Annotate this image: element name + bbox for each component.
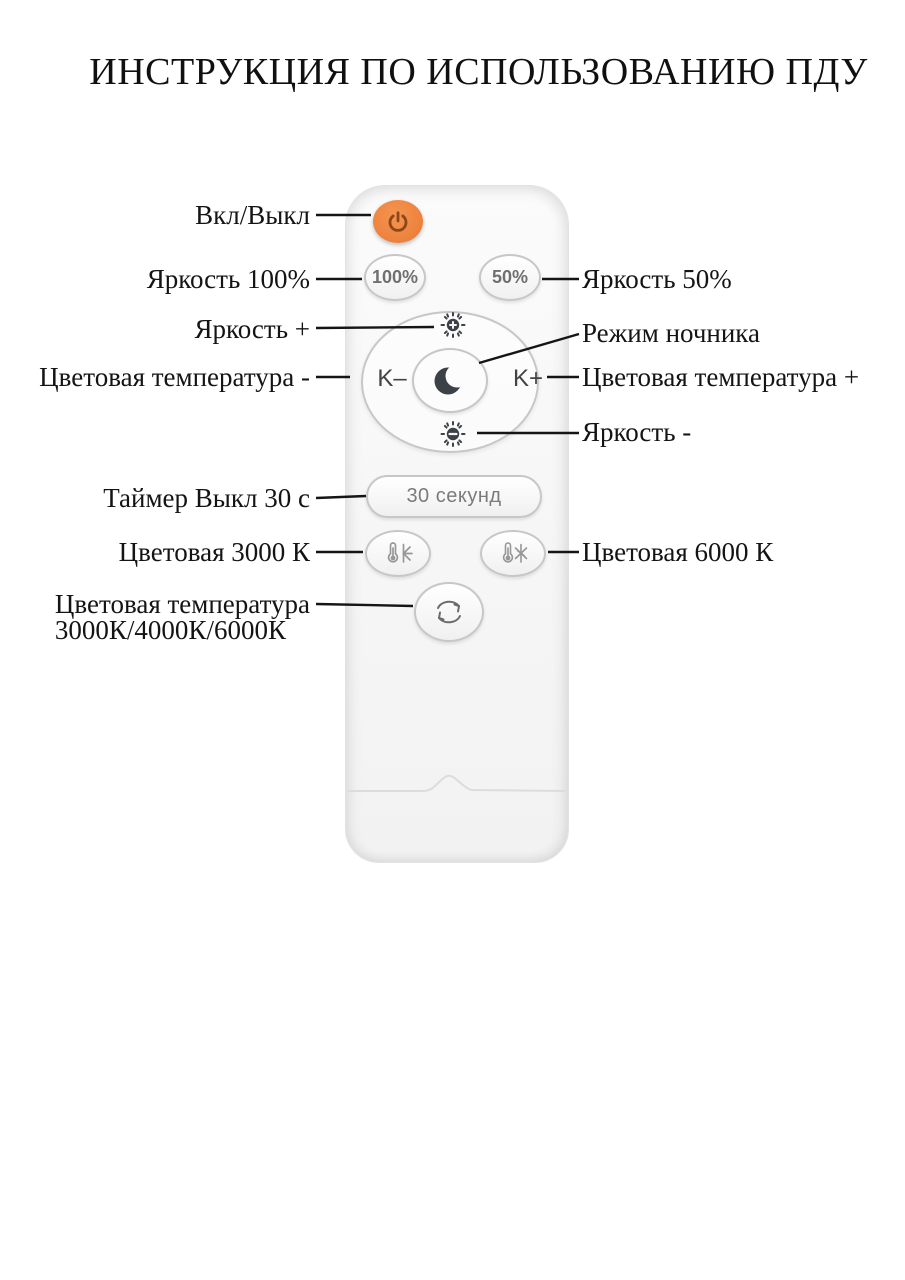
brightness-50-label: 50% — [492, 267, 528, 288]
label-brightness-50: Яркость 50% — [582, 265, 732, 293]
color-temp-minus-button[interactable]: K– — [370, 365, 414, 393]
label-night-mode: Режим ночника — [582, 319, 760, 347]
thermometer-snowflake-icon — [493, 539, 533, 569]
color-cycle-button[interactable] — [414, 582, 484, 642]
label-power: Вкл/Выкл — [195, 201, 310, 229]
label-brightness-up: Яркость + — [194, 315, 310, 343]
label-color-cycle: Цветовая температура 3000К/4000К/6000К — [55, 591, 310, 643]
label-color-6000: Цветовая 6000 К — [582, 538, 773, 566]
color-3000k-button[interactable] — [365, 530, 431, 577]
color-temp-plus-button[interactable]: K+ — [506, 365, 550, 393]
label-brightness-100: Яркость 100% — [147, 265, 310, 293]
color-6000k-button[interactable] — [480, 530, 546, 577]
label-color-temp-minus: Цветовая температура - — [39, 363, 310, 391]
label-timer-off-30s: Таймер Выкл 30 с — [103, 484, 310, 512]
brightness-100-label: 100% — [372, 267, 418, 288]
power-icon — [385, 209, 411, 235]
page-title: ИНСТРУКЦИЯ ПО ИСПОЛЬЗОВАНИЮ ПДУ — [26, 50, 905, 94]
sun-minus-icon[interactable] — [436, 419, 470, 449]
label-color-temp-plus: Цветовая температура + — [582, 363, 859, 391]
moon-icon — [427, 360, 473, 402]
sun-plus-icon[interactable] — [436, 310, 470, 340]
cycle-arrows-icon — [426, 592, 472, 632]
power-button[interactable] — [373, 200, 423, 243]
timer-30s-button[interactable]: 30 секунд — [366, 475, 542, 518]
label-color-cycle-line1: Цветовая температура — [55, 591, 310, 617]
brightness-100-button[interactable]: 100% — [364, 254, 426, 301]
label-brightness-down: Яркость - — [582, 418, 691, 446]
label-color-3000: Цветовая 3000 К — [119, 538, 310, 566]
instruction-page: ИНСТРУКЦИЯ ПО ИСПОЛЬЗОВАНИЮ ПДУ 100% 50% — [0, 0, 905, 1280]
brightness-50-button[interactable]: 50% — [479, 254, 541, 301]
night-mode-button[interactable] — [412, 348, 488, 413]
timer-30s-label: 30 секунд — [406, 485, 501, 508]
thermometer-sun-icon — [378, 539, 418, 569]
label-color-cycle-line2: 3000К/4000К/6000К — [55, 617, 310, 643]
